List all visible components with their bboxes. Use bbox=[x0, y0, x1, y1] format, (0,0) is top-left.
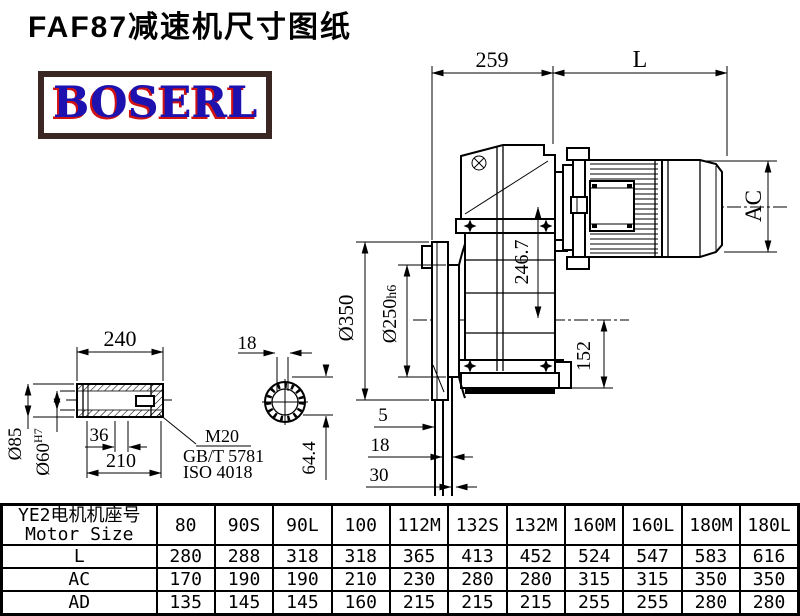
note-thread: M20 bbox=[205, 426, 239, 446]
cell: 315 bbox=[623, 568, 681, 591]
dim-offset-30: 30 bbox=[370, 465, 389, 486]
col-header: 100 bbox=[332, 505, 390, 546]
dim-base-height: 152 bbox=[573, 341, 595, 371]
cell: 365 bbox=[390, 545, 448, 568]
dim-key-depth: 64.4 bbox=[299, 441, 320, 475]
cell: 170 bbox=[157, 568, 215, 591]
col-header: 180L bbox=[740, 505, 798, 546]
row-label: L bbox=[2, 545, 157, 568]
col-header: 132S bbox=[448, 505, 506, 546]
dim-spigot: Ø250h6 bbox=[379, 285, 401, 343]
cell: 190 bbox=[273, 568, 331, 591]
dim-center-height: 246.7 bbox=[511, 240, 533, 285]
output-flange bbox=[422, 242, 465, 496]
col-header: 112M bbox=[390, 505, 448, 546]
cell: 616 bbox=[740, 545, 798, 568]
cell: 135 bbox=[157, 591, 215, 615]
motor-size-header-cn: YE2电机机座号 bbox=[3, 506, 156, 525]
cell: 215 bbox=[390, 591, 448, 615]
motor bbox=[555, 148, 722, 269]
note-std2: ISO 4018 bbox=[183, 462, 253, 482]
dim-shaft-od: Ø85 bbox=[5, 428, 26, 461]
table-row: AC 170 190 190 210 230 280 280 315 315 3… bbox=[2, 568, 799, 591]
cell: 145 bbox=[273, 591, 331, 615]
cell: 280 bbox=[157, 545, 215, 568]
cell: 280 bbox=[740, 591, 798, 615]
fan-cover bbox=[662, 160, 722, 257]
brand-logo: BOSERL bbox=[38, 71, 272, 139]
cell: 215 bbox=[507, 591, 565, 615]
col-header: 132M bbox=[507, 505, 565, 546]
col-header: 90L bbox=[273, 505, 331, 546]
cell: 288 bbox=[215, 545, 273, 568]
col-header: 160M bbox=[565, 505, 623, 546]
motor-size-table: YE2电机机座号 Motor Size 80 90S 90L 100 112M … bbox=[0, 503, 800, 616]
cell: 583 bbox=[682, 545, 740, 568]
table-row: L 280 288 318 318 365 413 452 524 547 58… bbox=[2, 545, 799, 568]
dim-shaft-length: 240 bbox=[104, 326, 137, 351]
cell: 160 bbox=[332, 591, 390, 615]
cell: 318 bbox=[273, 545, 331, 568]
cell: 230 bbox=[390, 568, 448, 591]
dim-key-width: 18 bbox=[238, 333, 257, 354]
cell: 524 bbox=[565, 545, 623, 568]
dim-shaft-step: 36 bbox=[90, 425, 109, 446]
cell: 215 bbox=[448, 591, 506, 615]
row-label: AD bbox=[2, 591, 157, 615]
dim-motor-diameter: AC bbox=[741, 190, 766, 222]
table-row: AD 135 145 145 160 215 215 215 255 255 2… bbox=[2, 591, 799, 615]
motor-size-header: YE2电机机座号 Motor Size bbox=[2, 505, 157, 546]
cell: 350 bbox=[740, 568, 798, 591]
page-title: FAF87减速机尺寸图纸 bbox=[28, 2, 352, 46]
dim-offset-5: 5 bbox=[378, 405, 388, 426]
dim-motor-length: L bbox=[633, 47, 648, 73]
dim-top-width: 259 bbox=[476, 47, 509, 72]
cell: 280 bbox=[682, 591, 740, 615]
cell: 315 bbox=[565, 568, 623, 591]
cell: 318 bbox=[332, 545, 390, 568]
cell: 452 bbox=[507, 545, 565, 568]
dim-offset-18: 18 bbox=[371, 435, 390, 456]
cell: 145 bbox=[215, 591, 273, 615]
cell: 547 bbox=[623, 545, 681, 568]
cell: 255 bbox=[623, 591, 681, 615]
cell: 255 bbox=[565, 591, 623, 615]
col-header: 180M bbox=[682, 505, 740, 546]
dim-shaft-inner: 210 bbox=[106, 450, 136, 472]
row-label: AC bbox=[2, 568, 157, 591]
dim-flange-od: Ø350 bbox=[334, 295, 358, 342]
dim-shaft-bore: Ø60H7 bbox=[31, 428, 54, 475]
cell: 190 bbox=[215, 568, 273, 591]
cell: 280 bbox=[507, 568, 565, 591]
cell: 413 bbox=[448, 545, 506, 568]
cell: 210 bbox=[332, 568, 390, 591]
table-header-row: YE2电机机座号 Motor Size 80 90S 90L 100 112M … bbox=[2, 505, 799, 546]
brand-logo-text: BOSERL bbox=[53, 78, 257, 128]
cell: 350 bbox=[682, 568, 740, 591]
col-header: 160L bbox=[623, 505, 681, 546]
key-section-view bbox=[262, 357, 308, 425]
col-header: 90S bbox=[215, 505, 273, 546]
cell: 280 bbox=[448, 568, 506, 591]
col-header: 80 bbox=[157, 505, 215, 546]
motor-size-header-en: Motor Size bbox=[3, 525, 156, 544]
